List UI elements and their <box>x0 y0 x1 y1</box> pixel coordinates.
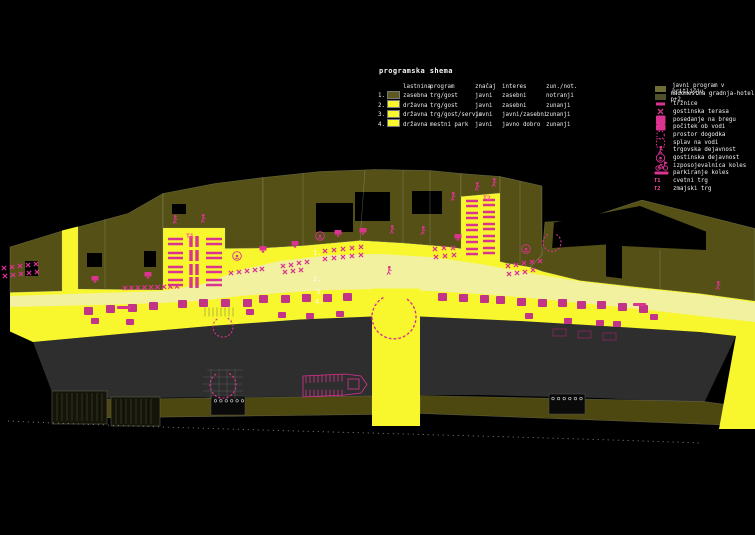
cell-program: trg/gost/servis <box>430 111 475 120</box>
t2-icon: T2 <box>654 186 661 192</box>
cell-program: mestni park <box>430 121 475 130</box>
row-number: 4. <box>378 121 387 130</box>
legend-item-label: počitek ob vodi <box>673 124 725 130</box>
legend-table-header: lastnina program značaj interes zun./not… <box>378 83 586 92</box>
legend-item-label: parkiranje koles <box>673 170 729 176</box>
cell-owner: državna <box>403 121 430 130</box>
legend-item-label: splav na vodi <box>673 140 718 146</box>
cell-interest: javni/zasebni <box>502 111 546 120</box>
zone-1-label: 1. <box>313 249 321 257</box>
zone1-swatch-icon <box>387 91 400 99</box>
zone3-swatch-icon <box>387 110 400 118</box>
bridge <box>372 289 420 427</box>
cell-interest: javno dobro <box>502 121 546 130</box>
cell-interest: zasebni <box>502 92 546 101</box>
cell-program: trg/gost <box>430 102 475 111</box>
legend-table-row: 4. državna mestni park javni javno dobro… <box>378 121 586 130</box>
zone4-swatch-icon <box>387 119 400 127</box>
zone-3-label: 3. <box>316 288 324 296</box>
left-yellow-strip <box>62 227 78 292</box>
zone2-swatch-icon <box>387 100 400 108</box>
col-header-znacaj: značaj <box>475 83 502 92</box>
program-scheme-page: T1 T2 1. 2. 3. 4. programska shema lastn… <box>0 0 755 535</box>
cell-character: javni <box>475 121 502 130</box>
legend-item-label: trgovska dejavnost <box>673 147 736 153</box>
t1-icon: T1 <box>654 178 661 184</box>
cell-orientation: zunanji <box>546 121 586 130</box>
t2-square-label: T2 <box>483 194 491 202</box>
cell-character: javni <box>475 102 502 111</box>
col-header-lastnina: lastnina <box>403 83 430 92</box>
row-number: 1. <box>378 92 387 101</box>
cell-owner: državna <box>403 111 430 120</box>
row-number: 2. <box>378 102 387 111</box>
col-header-program: program <box>430 83 475 92</box>
legend-item-label: gostinska dejavnost <box>673 155 739 161</box>
legend-item-label: izposojevalnica koles <box>673 163 746 169</box>
cell-interest: zasebni <box>502 102 546 111</box>
legend-table-row: 2. državna trg/gost javni zasebni zunanj… <box>378 102 586 111</box>
col-header-zun-not: zun./not. <box>546 83 586 92</box>
cell-owner: zasebna <box>403 92 430 101</box>
cell-character: javni <box>475 92 502 101</box>
page-title: programska shema <box>379 67 453 75</box>
legend-table-row: 1. zasebna trg/gost javni zasebni notran… <box>378 92 586 101</box>
col-header-interes: interes <box>502 83 546 92</box>
cell-character: javni <box>475 111 502 120</box>
zone-2-label: 2. <box>313 275 321 283</box>
legend-item: T2 zmajski trg <box>654 185 755 193</box>
legend-item-label: cvetni trg <box>673 178 708 184</box>
cell-orientation: notranji <box>546 92 586 101</box>
row-number: 3. <box>378 111 387 120</box>
legend-item-label: prostor dogodka <box>673 132 725 138</box>
legend-item-label: posedanje na bregu <box>673 117 736 123</box>
cell-owner: državna <box>403 102 430 111</box>
cell-program: trg/gost <box>430 92 475 101</box>
symbol-legend: javni program v pritličju nadomestna gra… <box>654 85 755 193</box>
program-scheme-map: T1 T2 1. 2. 3. 4. <box>0 0 755 535</box>
legend-item-label: zmajski trg <box>673 186 711 192</box>
legend-table: lastnina program značaj interes zun./not… <box>378 83 586 130</box>
legend-table-row: 3. državna trg/gost/servis javni javni/z… <box>378 111 586 120</box>
t1-square-label: T1 <box>186 232 194 240</box>
cell-orientation: zunanji <box>546 111 586 120</box>
legend-item-label: tržnice <box>673 101 697 107</box>
cell-orientation: zunanji <box>546 102 586 111</box>
legend-item-label: gostinska terasa <box>673 109 729 115</box>
zone-4-label: 4. <box>315 298 323 306</box>
